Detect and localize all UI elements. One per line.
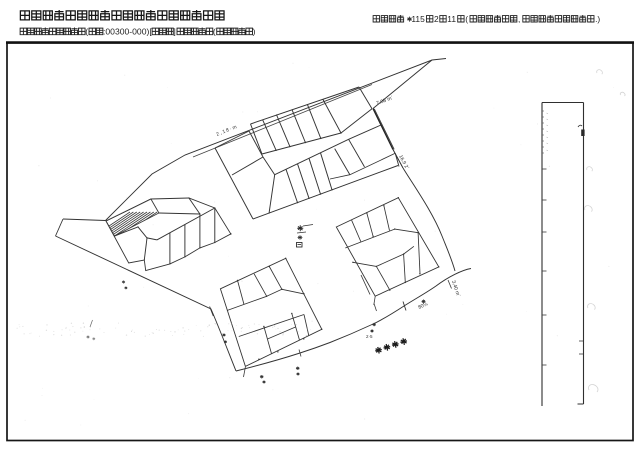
svg-text:16.9 2´: 16.9 2´ xyxy=(397,154,410,171)
svg-text:(: ( xyxy=(85,27,88,37)
svg-text:115: 115 xyxy=(411,14,425,24)
svg-text:): ) xyxy=(253,27,256,37)
svg-text:.): .) xyxy=(595,14,600,24)
svg-text:(: ( xyxy=(213,27,216,37)
svg-text:80¼: 80¼ xyxy=(417,301,429,311)
svg-text::00300-000)[: :00300-000)[ xyxy=(103,27,152,37)
svg-text:]: ] xyxy=(173,27,175,37)
svg-text:2: 2 xyxy=(434,14,439,24)
svg-text:(: ( xyxy=(465,14,468,24)
svg-text:,: , xyxy=(518,14,520,24)
svg-text:2·5: 2·5 xyxy=(366,334,373,339)
svg-text:3,40 m´: 3,40 m´ xyxy=(450,280,461,298)
svg-text:11: 11 xyxy=(447,14,456,24)
svg-text:7.08 m´: 7.08 m´ xyxy=(376,95,395,107)
